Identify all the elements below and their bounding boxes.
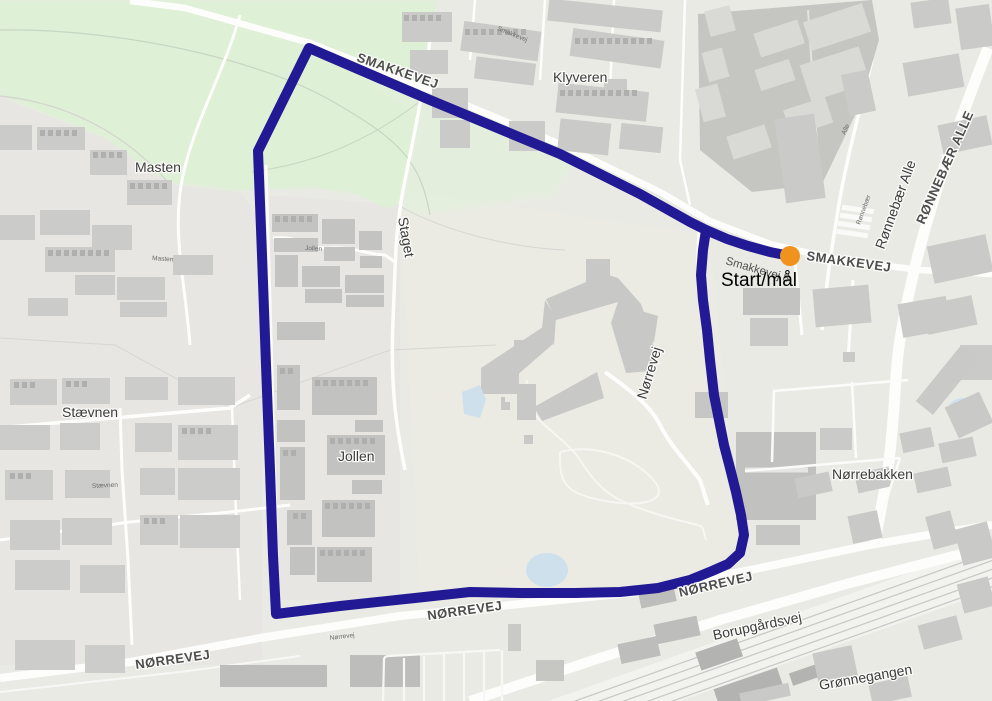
svg-text:Nørrebakken: Nørrebakken	[832, 466, 913, 482]
svg-text:Stævnen: Stævnen	[92, 482, 119, 490]
svg-text:Masten: Masten	[135, 159, 181, 175]
svg-text:Start/mål: Start/mål	[721, 270, 797, 291]
svg-text:Klyveren: Klyveren	[553, 69, 607, 85]
svg-text:Stævnen: Stævnen	[62, 404, 118, 420]
svg-text:Jollen: Jollen	[338, 448, 375, 464]
svg-text:Jollen: Jollen	[305, 245, 323, 253]
